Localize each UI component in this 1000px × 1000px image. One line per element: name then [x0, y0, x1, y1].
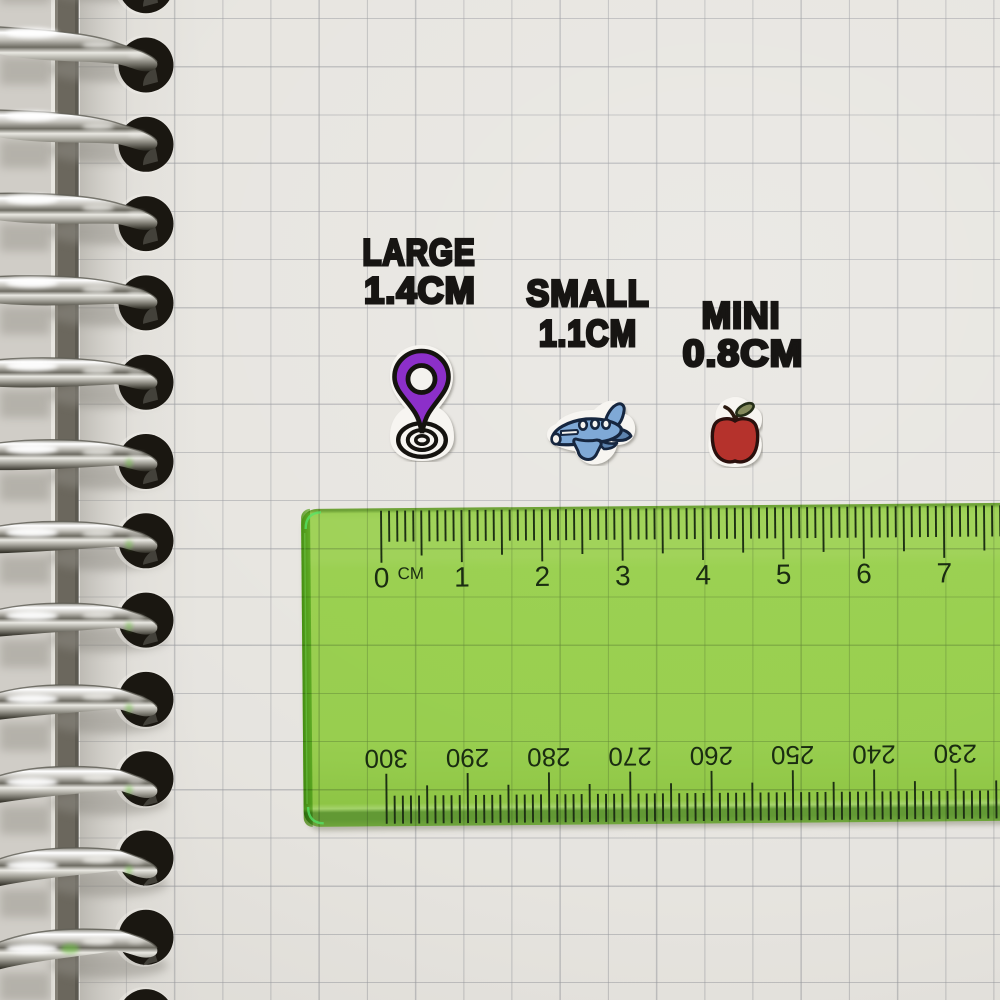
svg-text:4: 4 [695, 559, 711, 590]
svg-text:5: 5 [776, 559, 792, 590]
svg-text:290: 290 [446, 743, 490, 773]
svg-text:240: 240 [852, 739, 896, 769]
svg-text:260: 260 [690, 741, 734, 771]
svg-text:300: 300 [364, 744, 408, 774]
svg-text:270: 270 [608, 741, 652, 771]
svg-text:250: 250 [771, 740, 815, 770]
svg-text:7: 7 [936, 557, 952, 588]
svg-text:0: 0 [374, 562, 390, 593]
svg-text:230: 230 [933, 739, 977, 769]
svg-text:1: 1 [454, 562, 470, 593]
svg-text:280: 280 [527, 742, 571, 772]
svg-text:CM: CM [397, 564, 424, 583]
svg-text:6: 6 [856, 558, 872, 589]
svg-text:3: 3 [615, 560, 631, 591]
svg-text:2: 2 [534, 561, 550, 592]
